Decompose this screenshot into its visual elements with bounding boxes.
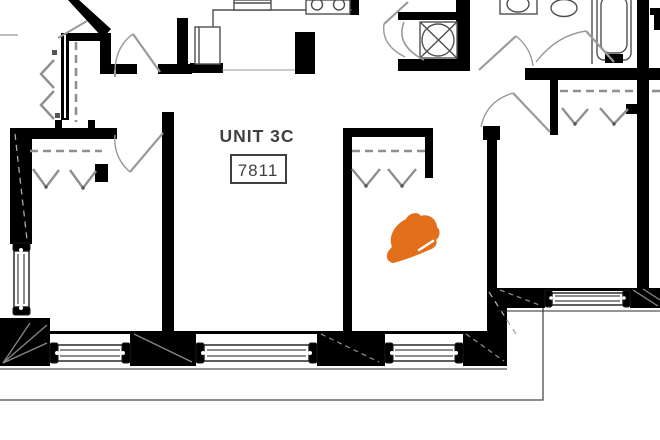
- unit-number-badge: 7811: [231, 155, 286, 183]
- toilet: [551, 0, 577, 17]
- doors: [58, 2, 614, 172]
- floorplan-viewport: UNIT 3C 7811: [0, 0, 660, 440]
- door: [479, 36, 533, 70]
- washer-dryer: [420, 22, 457, 58]
- window: [385, 343, 463, 363]
- window: [50, 343, 130, 363]
- door: [115, 133, 163, 172]
- unit-label: UNIT 3C: [219, 126, 294, 146]
- refrigerator: [195, 27, 220, 64]
- kitchen-sink: [306, 0, 350, 14]
- window: [545, 290, 630, 307]
- unit-number: 7811: [238, 161, 279, 180]
- cooktop: [234, 0, 271, 10]
- window: [13, 243, 30, 315]
- hard-hat-icon[interactable]: [387, 213, 440, 263]
- window: [196, 343, 317, 363]
- door: [384, 2, 408, 57]
- hard-hat-shape[interactable]: [387, 213, 440, 263]
- bathroom-sink: [500, 0, 537, 14]
- bathtub: [597, 0, 631, 63]
- floor-plan: UNIT 3C 7811: [0, 0, 660, 440]
